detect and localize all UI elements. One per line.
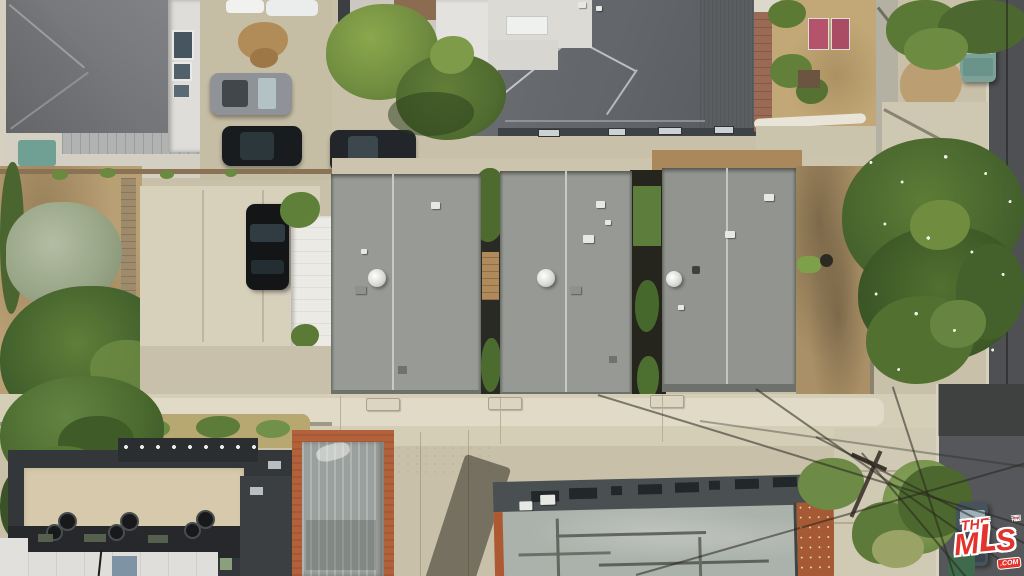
skylight-slit xyxy=(38,534,53,542)
eave-window xyxy=(608,128,626,136)
satellite-dish xyxy=(368,269,386,287)
skylight-slit xyxy=(84,534,106,542)
roof-box xyxy=(692,266,700,274)
magnolia-flowers xyxy=(850,140,1024,420)
eave-window xyxy=(658,127,682,135)
green-lattice xyxy=(633,186,661,246)
suv-sunroof xyxy=(222,80,248,107)
roof-dark-patch xyxy=(306,520,376,570)
teal-tarp xyxy=(18,140,56,166)
skylight xyxy=(611,486,622,495)
roof-eave-line xyxy=(505,120,705,122)
roof-pipe xyxy=(609,356,617,363)
eave-window xyxy=(714,126,734,134)
rooftop-pipes xyxy=(118,438,258,462)
mls-watermark: THE M L S ™ .COM xyxy=(949,511,1024,576)
window xyxy=(173,84,190,98)
terracotta-edge xyxy=(494,512,505,576)
dark-side-wall xyxy=(240,476,292,576)
white-corner-building xyxy=(0,538,28,576)
skylight-slit xyxy=(148,535,168,543)
roof-ridge xyxy=(726,168,728,392)
small-window xyxy=(268,461,281,469)
unit-roof-3 xyxy=(662,168,796,392)
pink-gate xyxy=(831,18,850,50)
driveway-seam xyxy=(500,396,501,444)
roof-eave xyxy=(662,384,796,392)
roof-vent xyxy=(764,194,774,201)
aerial-photo: THE M L S ™ .COM xyxy=(0,0,1024,576)
white-flat-roof xyxy=(488,40,558,70)
roof-vent xyxy=(596,6,602,11)
pink-gate xyxy=(808,18,829,50)
roof-vent xyxy=(725,231,735,238)
pad-seam xyxy=(202,190,204,342)
car-windshield xyxy=(250,224,285,242)
roof-vent xyxy=(431,202,440,209)
small-window xyxy=(250,487,263,495)
teal-car-roof xyxy=(963,58,993,76)
roof-box xyxy=(570,286,581,294)
lit-window xyxy=(220,558,232,570)
roof-vent xyxy=(578,2,586,8)
skylight xyxy=(569,488,597,500)
satellite-dish xyxy=(537,269,555,287)
sedan-glass xyxy=(240,132,274,160)
tree-canopy xyxy=(904,28,968,70)
skylight xyxy=(735,479,759,490)
skylight xyxy=(172,30,194,60)
roof-vent xyxy=(361,249,367,254)
roof-vent xyxy=(583,235,594,243)
skylight xyxy=(675,482,699,493)
round-vent xyxy=(184,522,201,539)
car-rear-glass xyxy=(251,260,284,274)
roof-ridge xyxy=(565,171,567,401)
skylight xyxy=(172,62,192,81)
watermark-com: .COM xyxy=(998,558,1021,569)
watermark-tm: ™ xyxy=(1012,516,1020,524)
watermark-letter-s: S xyxy=(994,525,1017,557)
skylight xyxy=(638,484,662,495)
white-car xyxy=(266,0,318,16)
roof-vent xyxy=(605,220,611,225)
eave-window xyxy=(538,129,560,137)
concrete-seam xyxy=(420,432,421,576)
white-wall-bottom xyxy=(0,552,218,576)
planter-box xyxy=(798,70,820,88)
roof-vent xyxy=(519,501,532,510)
roof-hatch xyxy=(506,16,548,35)
door xyxy=(112,556,137,576)
wheel-stop xyxy=(366,398,400,411)
roof-vent xyxy=(540,495,555,505)
wheel-stop xyxy=(650,395,684,408)
roof-pipe xyxy=(398,366,407,374)
roof-vent xyxy=(678,305,684,310)
unit-roof-1 xyxy=(331,174,481,397)
skylight xyxy=(709,481,720,490)
white-car xyxy=(226,0,264,13)
suv-windshield xyxy=(258,78,276,109)
warehouse-building xyxy=(493,474,835,576)
driveway-seam xyxy=(662,394,663,442)
wheel-stop xyxy=(488,397,522,410)
roof-ridge xyxy=(392,174,394,397)
dark-round-object xyxy=(820,254,833,267)
round-vent xyxy=(108,524,125,541)
skylight xyxy=(773,477,797,488)
roof-vent xyxy=(596,201,605,208)
satellite-dish xyxy=(666,271,682,287)
roof-box xyxy=(355,286,366,294)
terracotta-column xyxy=(796,502,835,576)
green-patch xyxy=(797,256,821,273)
street-tree-shadow xyxy=(938,384,1024,436)
watermark-letter-m: M xyxy=(953,529,981,561)
stacked-boxes xyxy=(482,252,499,300)
